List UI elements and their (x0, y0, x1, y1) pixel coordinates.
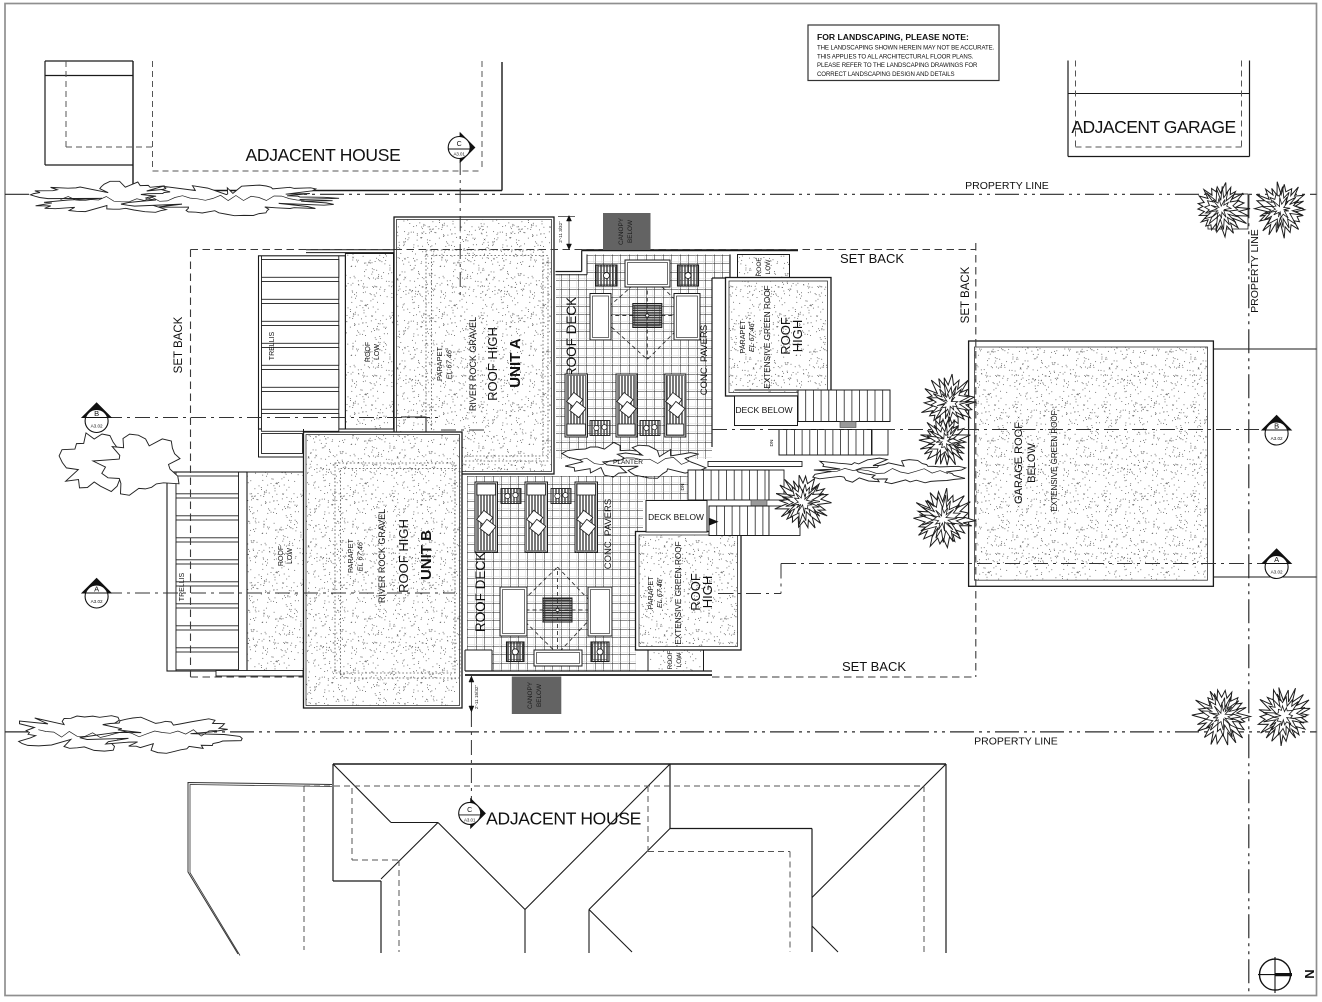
svg-text:CANOPY: CANOPY (527, 681, 534, 709)
svg-text:FOR LANDSCAPING, PLEASE NOTE:: FOR LANDSCAPING, PLEASE NOTE: (817, 32, 969, 42)
svg-text:DN: DN (769, 439, 775, 446)
svg-text:A3.01: A3.01 (453, 152, 465, 157)
svg-text:THE LANDSCAPING SHOWN HEREIN M: THE LANDSCAPING SHOWN HEREIN MAY NOT BE … (817, 45, 995, 52)
svg-text:PARAPET: PARAPET (646, 576, 655, 610)
svg-text:N: N (1302, 969, 1317, 978)
svg-text:ROOF: ROOF (756, 258, 763, 277)
svg-text:ROOF: ROOF (365, 342, 372, 362)
svg-text:C: C (467, 807, 472, 814)
svg-text:PARAPET: PARAPET (738, 320, 747, 354)
svg-text:RIVER ROCK GRAVEL: RIVER ROCK GRAVEL (468, 317, 478, 411)
svg-text:EL 67.46': EL 67.46' (356, 540, 365, 571)
svg-text:LOW: LOW (765, 259, 772, 275)
svg-text:SET BACK: SET BACK (960, 266, 972, 323)
svg-text:ROOF DECK: ROOF DECK (564, 297, 579, 377)
svg-text:A: A (94, 585, 99, 594)
svg-text:GARAGE ROOF: GARAGE ROOF (1013, 422, 1025, 504)
svg-text:RIVER ROCK GRAVEL: RIVER ROCK GRAVEL (377, 509, 387, 603)
svg-text:PLEASE REFER TO THE LANDSCAPIN: PLEASE REFER TO THE LANDSCAPING DRAWINGS… (817, 62, 978, 69)
svg-text:PROPERTY LINE: PROPERTY LINE (974, 736, 1058, 748)
svg-text:PROPERTY LINE: PROPERTY LINE (965, 180, 1049, 192)
svg-text:DN: DN (680, 483, 686, 490)
svg-text:TRELLIS: TRELLIS (269, 331, 276, 360)
svg-text:CONC. PAVERS: CONC. PAVERS (699, 325, 710, 395)
svg-text:PARAPET: PARAPET (435, 347, 444, 381)
svg-text:ROOF HIGH: ROOF HIGH (396, 519, 411, 593)
svg-text:EXTENSIVE GREEN ROOF: EXTENSIVE GREEN ROOF (763, 285, 772, 388)
svg-text:EL 67.46': EL 67.46' (445, 348, 454, 379)
svg-text:A3.02: A3.02 (1271, 570, 1283, 575)
svg-text:PROPERTY LINE: PROPERTY LINE (1249, 229, 1261, 313)
svg-text:PARAPET: PARAPET (346, 539, 355, 573)
svg-text:ROOF HIGH: ROOF HIGH (485, 327, 500, 401)
svg-text:LOW: LOW (374, 344, 381, 360)
svg-text:EL 67.46': EL 67.46' (747, 321, 756, 352)
svg-text:SET BACK: SET BACK (840, 251, 904, 266)
svg-text:CANOPY: CANOPY (618, 217, 625, 245)
svg-text:PLANTER: PLANTER (613, 459, 643, 466)
svg-text:TRELLIS: TRELLIS (179, 572, 186, 601)
svg-text:UNIT B: UNIT B (418, 530, 435, 580)
svg-text:BELOW: BELOW (536, 683, 543, 707)
svg-text:EL 67.46': EL 67.46' (655, 577, 664, 608)
svg-text:ROOF: ROOF (278, 546, 285, 566)
svg-text:DECK BELOW: DECK BELOW (648, 512, 704, 522)
svg-text:A3.02: A3.02 (1271, 436, 1283, 441)
svg-text:A3.02: A3.02 (91, 599, 103, 604)
svg-text:LOW: LOW (287, 548, 294, 564)
svg-text:EXTENSIVE GREEN ROOF: EXTENSIVE GREEN ROOF (674, 541, 683, 644)
svg-text:THIS APPLIES TO ALL ARCHITECTU: THIS APPLIES TO ALL ARCHITECTURAL FLOOR … (817, 53, 974, 60)
svg-text:BELOW: BELOW (627, 219, 634, 243)
svg-text:A: A (1274, 555, 1279, 564)
svg-text:ADJACENT GARAGE: ADJACENT GARAGE (1071, 117, 1235, 137)
svg-text:LOW: LOW (676, 652, 683, 668)
svg-text:ROOF DECK: ROOF DECK (473, 552, 488, 632)
svg-text:SET BACK: SET BACK (173, 316, 185, 373)
svg-text:2'-11 3/32": 2'-11 3/32" (558, 221, 563, 243)
svg-text:ADJACENT HOUSE: ADJACENT HOUSE (246, 145, 401, 165)
svg-text:HIGH: HIGH (790, 320, 805, 353)
svg-text:B: B (94, 409, 99, 418)
svg-text:A3.02: A3.02 (91, 424, 103, 429)
svg-text:DECK BELOW: DECK BELOW (735, 405, 793, 415)
svg-text:2'-11 15/32": 2'-11 15/32" (474, 685, 479, 710)
svg-text:ROOF: ROOF (667, 651, 674, 670)
svg-text:C: C (457, 141, 462, 148)
svg-text:B: B (1274, 422, 1279, 431)
svg-text:HIGH: HIGH (700, 576, 715, 609)
svg-text:UNIT A: UNIT A (507, 338, 524, 388)
svg-text:SET BACK: SET BACK (842, 659, 906, 674)
svg-text:EXTENSIVE GREEN ROOF: EXTENSIVE GREEN ROOF (1050, 410, 1059, 511)
svg-text:CONC. PAVERS: CONC. PAVERS (603, 499, 614, 569)
svg-text:BELOW: BELOW (1026, 443, 1038, 483)
svg-text:A3.01: A3.01 (464, 817, 476, 822)
svg-text:ADJACENT HOUSE: ADJACENT HOUSE (486, 809, 641, 829)
svg-text:CORRECT LANDSCAPING DESIGN AND: CORRECT LANDSCAPING DESIGN AND DETAILS (817, 71, 955, 78)
